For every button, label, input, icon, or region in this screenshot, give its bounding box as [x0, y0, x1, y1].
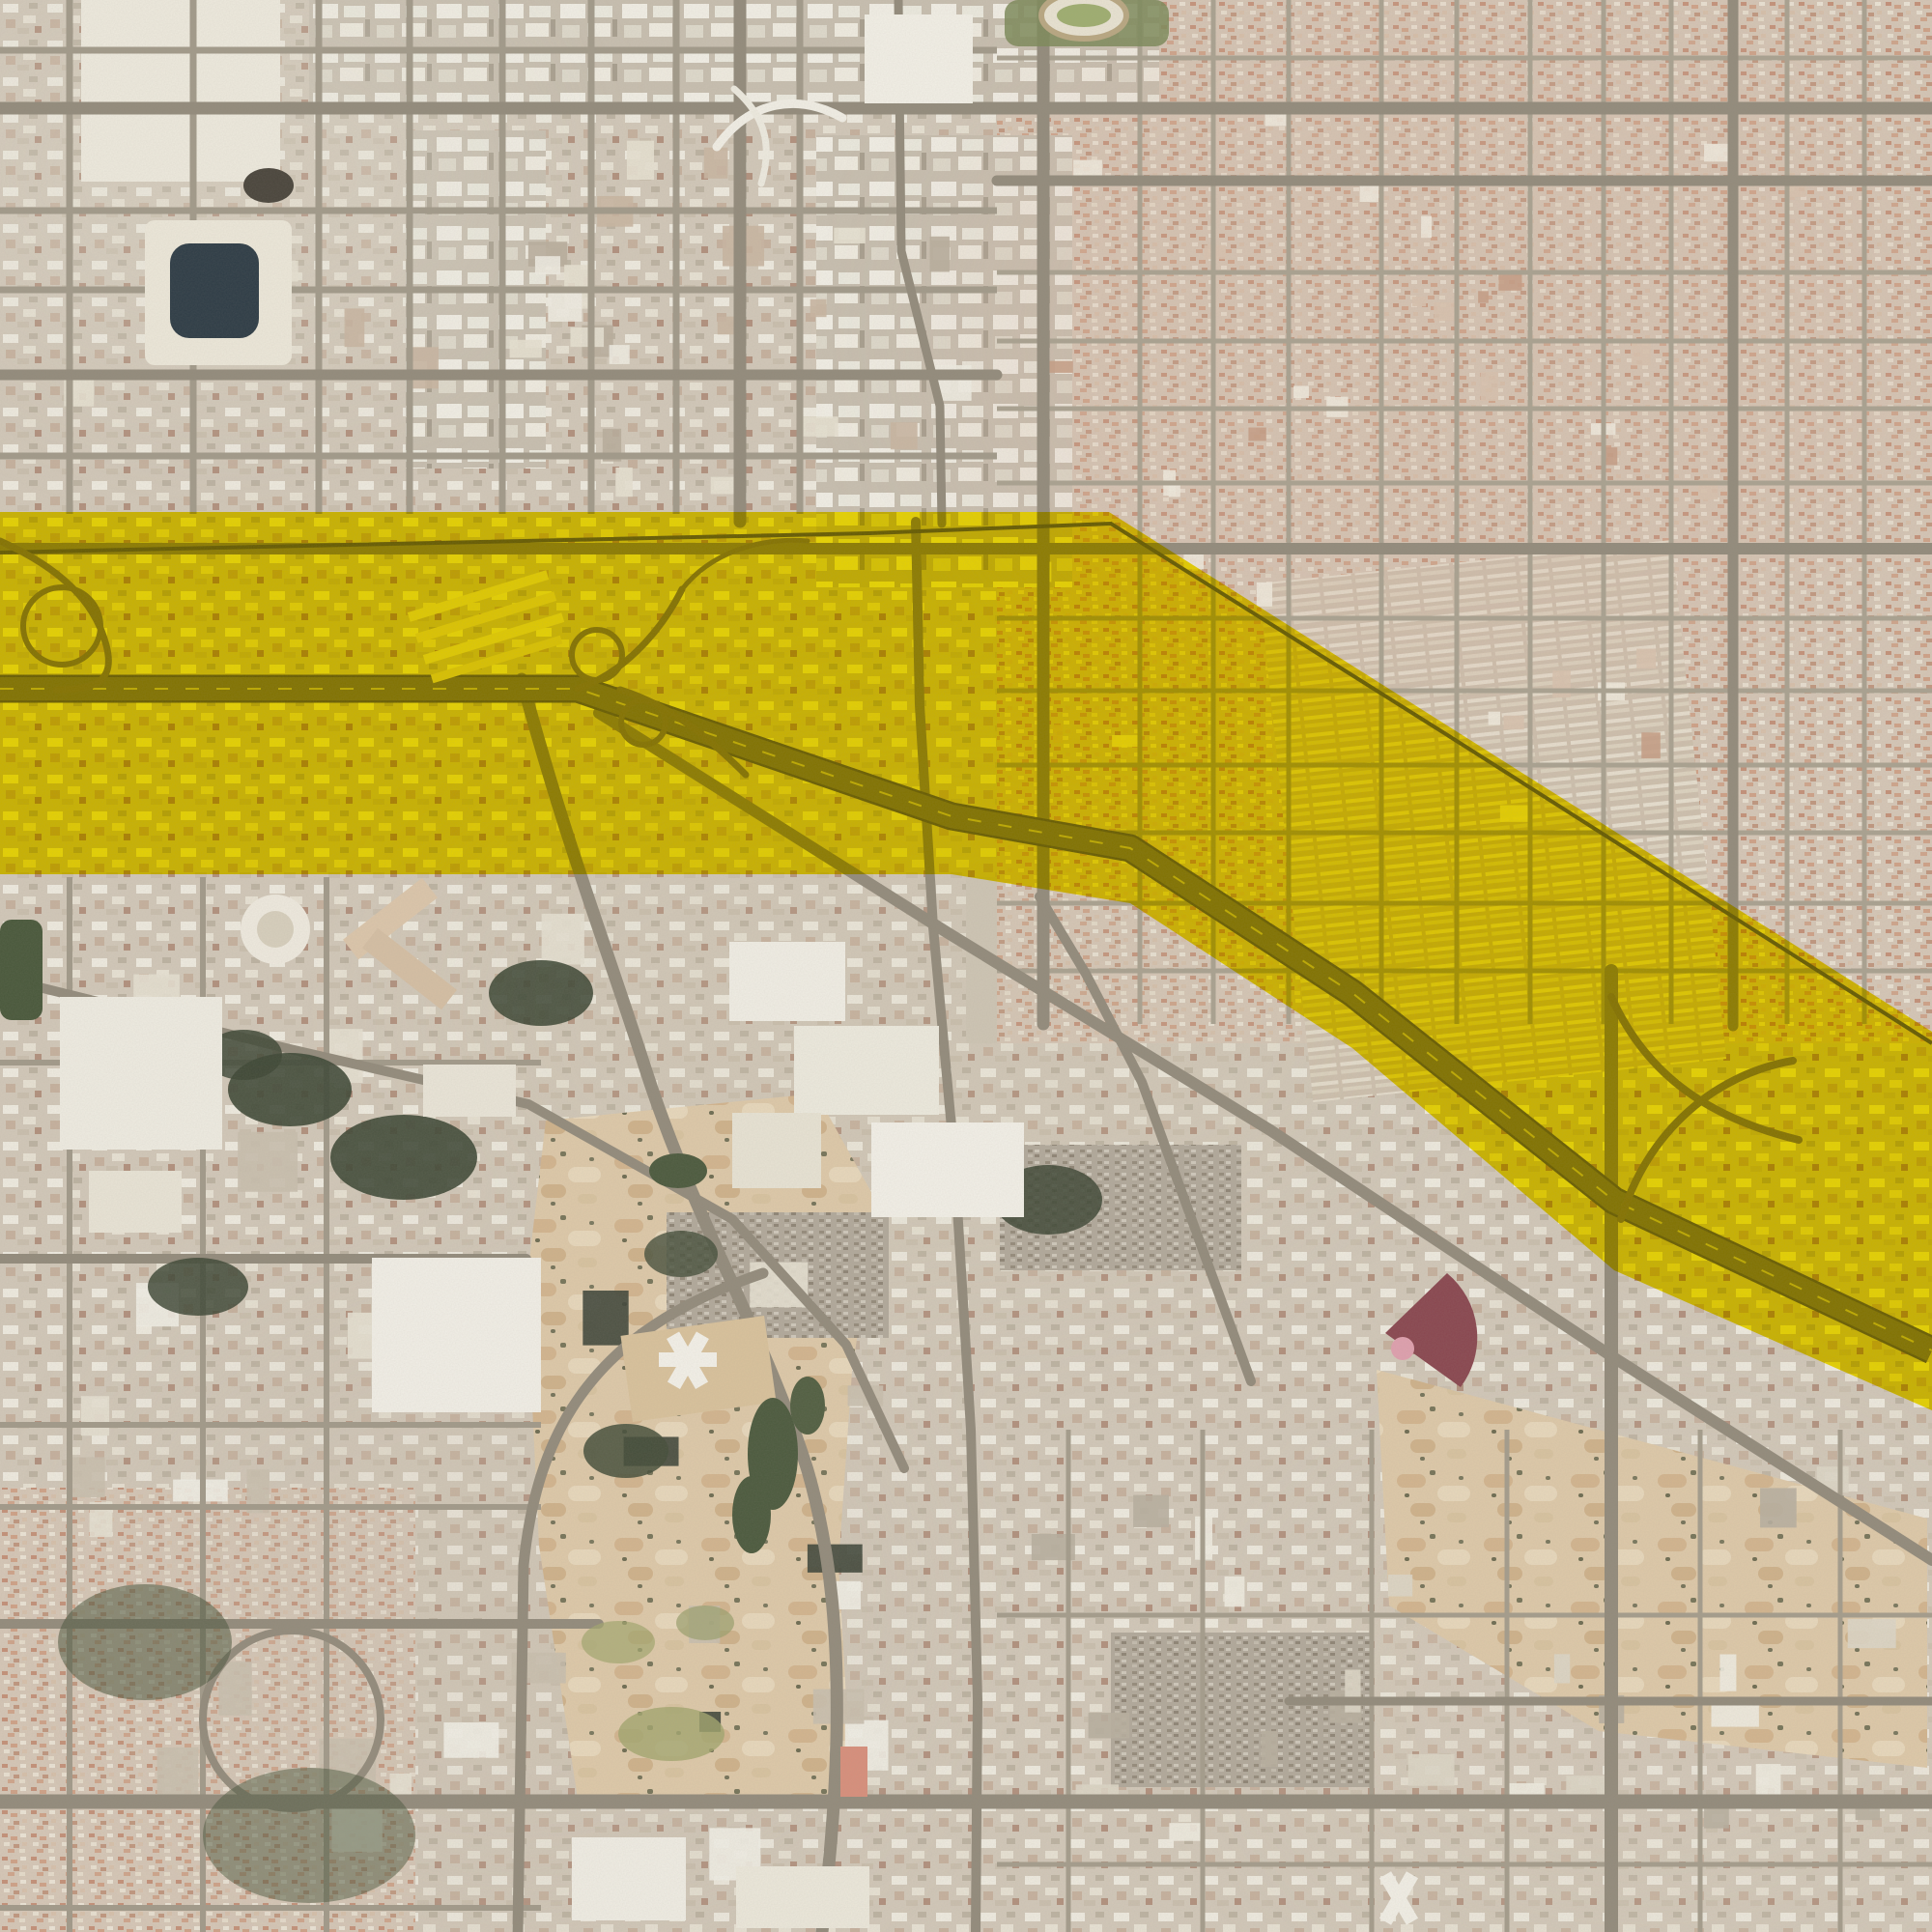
film-grain	[0, 0, 1932, 1932]
satellite-map[interactable]	[0, 0, 1932, 1932]
film-grain-layer	[0, 0, 1932, 1932]
satellite-map-viewport[interactable]	[0, 0, 1932, 1932]
